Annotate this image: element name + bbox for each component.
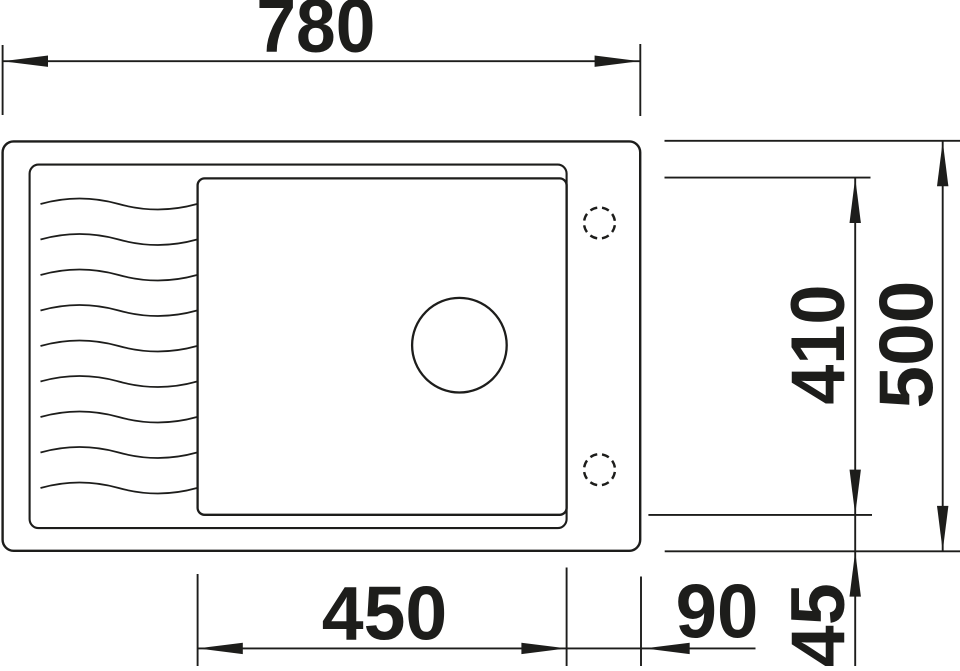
svg-text:410: 410 <box>776 285 861 405</box>
svg-text:500: 500 <box>865 281 950 409</box>
svg-text:90: 90 <box>676 570 759 655</box>
svg-text:45: 45 <box>776 583 861 666</box>
svg-text:780: 780 <box>256 0 375 69</box>
svg-text:450: 450 <box>322 572 448 657</box>
